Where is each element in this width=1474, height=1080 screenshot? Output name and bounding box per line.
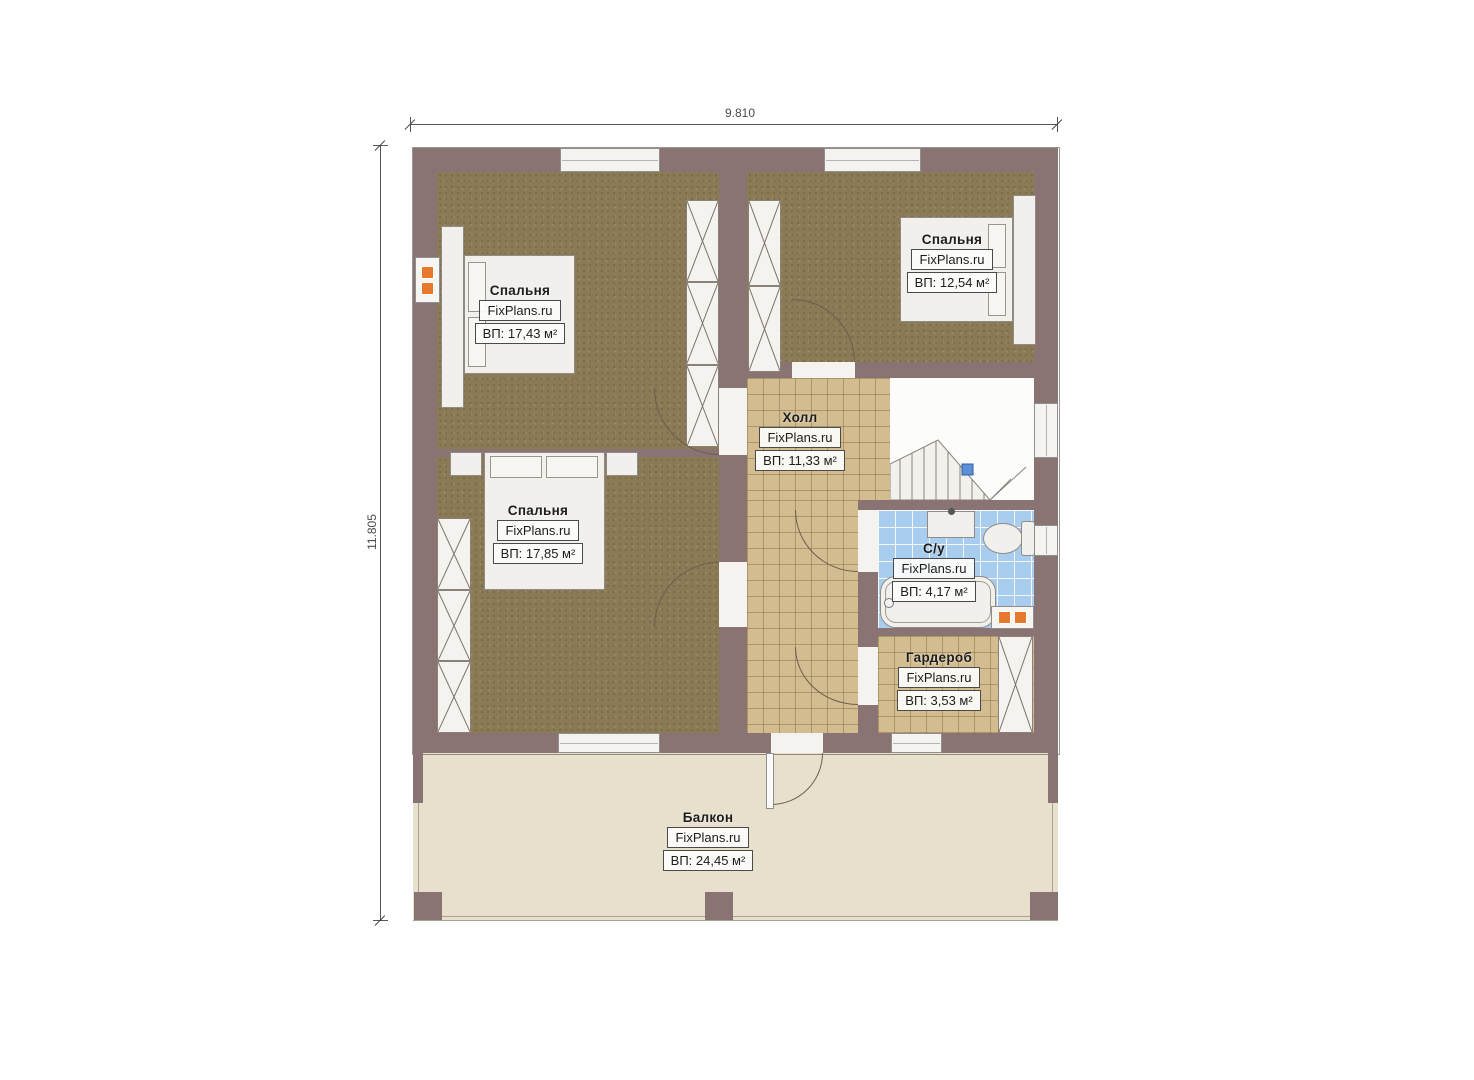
wardrobe-x-cell (748, 286, 781, 372)
wardrobe-x-cell (437, 590, 471, 662)
room-name: С/у (923, 541, 945, 556)
window-bottom-bedroom (558, 733, 660, 753)
room-label-bedroom-tr: Спальня FixPlans.ru ВП: 12,54 м² (888, 232, 1016, 293)
wall-bedroom-tr-bottom (747, 362, 1034, 378)
room-area: ВП: 4,17 м² (892, 581, 975, 602)
wall-bath-wardrobe-divider (858, 628, 1034, 636)
room-name: Спальня (490, 283, 550, 298)
floor-plan-canvas: Спальня FixPlans.ru ВП: 17,43 м² Спальня… (0, 0, 1474, 1080)
window-right-stairwell (1034, 403, 1058, 458)
door-gap-bathroom (858, 510, 878, 572)
balcony-column-left (414, 892, 442, 920)
window-top-left (560, 148, 660, 172)
room-label-bathroom: С/у FixPlans.ru ВП: 4,17 м² (880, 541, 988, 602)
dimension-line-left (380, 145, 381, 920)
room-name: Гардероб (906, 650, 972, 665)
vent-shaft-left (415, 257, 440, 303)
watermark: FixPlans.ru (911, 249, 992, 270)
stair-marker (962, 464, 973, 475)
watermark: FixPlans.ru (893, 558, 974, 579)
vent-shaft-bathroom (991, 606, 1034, 629)
nightstand (606, 452, 638, 476)
room-label-bedroom-tl: Спальня FixPlans.ru ВП: 17,43 м² (455, 283, 585, 344)
toilet-tank (1021, 521, 1035, 556)
toilet-bowl (983, 523, 1023, 554)
door-leaf-balcony (766, 753, 774, 809)
room-name: Холл (782, 410, 817, 425)
door-gap-bedroom-bl (719, 562, 747, 627)
balcony-edge-line (413, 920, 1058, 921)
bed-side-cabinet (1013, 195, 1036, 345)
room-area: ВП: 12,54 м² (907, 272, 998, 293)
wardrobe-x-cell (437, 661, 471, 733)
room-label-hall: Холл FixPlans.ru ВП: 11,33 м² (740, 410, 860, 471)
window-right-bathroom (1034, 525, 1058, 556)
wardrobe-x-cell (686, 200, 719, 282)
room-label-bedroom-bl: Спальня FixPlans.ru ВП: 17,85 м² (470, 503, 606, 564)
room-label-wardrobe: Гардероб FixPlans.ru ВП: 3,53 м² (883, 650, 995, 711)
vent-icon (421, 282, 434, 295)
dimension-line-top (410, 124, 1058, 125)
door-gap-bedroom-tr (792, 362, 855, 378)
room-area: ВП: 17,85 м² (493, 543, 584, 564)
nightstand (450, 452, 482, 476)
wardrobe-symbol-wardrobe-room (998, 636, 1033, 733)
wall-top (413, 148, 1058, 172)
balcony-column-right (1030, 892, 1058, 920)
room-area: ВП: 17,43 м² (475, 323, 566, 344)
dimension-height-label: 11.805 (365, 482, 379, 582)
balcony-wall-stub-left (413, 753, 423, 803)
room-label-balcony: Балкон FixPlans.ru ВП: 24,45 м² (643, 810, 773, 871)
balcony-column-middle (705, 892, 733, 920)
room-name: Балкон (683, 810, 734, 825)
wardrobe-symbol-bedroom-bl (437, 518, 471, 733)
wardrobe-x-cell (437, 518, 471, 590)
door-gap-balcony (771, 733, 823, 753)
vent-icon (1014, 611, 1027, 624)
watermark: FixPlans.ru (898, 667, 979, 688)
sink-tap-icon (948, 508, 955, 515)
room-area: ВП: 24,45 м² (663, 850, 754, 871)
room-name: Спальня (922, 232, 982, 247)
door-gap-wardrobe (858, 647, 878, 705)
room-area: ВП: 11,33 м² (755, 450, 845, 471)
watermark: FixPlans.ru (667, 827, 748, 848)
wardrobe-x-cell (998, 636, 1033, 733)
wall-left (413, 148, 437, 753)
wall-bath-top (858, 500, 1034, 510)
watermark: FixPlans.ru (759, 427, 840, 448)
vent-icon (421, 266, 434, 279)
pillow (546, 456, 598, 478)
wardrobe-x-cell (686, 282, 719, 364)
wardrobe-x-cell (748, 200, 781, 286)
watermark: FixPlans.ru (497, 520, 578, 541)
window-bottom-wardrobe (891, 733, 942, 753)
wall-bottom (413, 733, 1058, 753)
window-top-right (824, 148, 921, 172)
vent-icon (998, 611, 1011, 624)
pillow (490, 456, 542, 478)
sink (927, 511, 975, 538)
watermark: FixPlans.ru (479, 300, 560, 321)
room-name: Спальня (508, 503, 568, 518)
dimension-width-label: 9.810 (680, 106, 800, 120)
wardrobe-symbol-bedroom-tr (748, 200, 781, 372)
balcony-wall-stub-right (1048, 753, 1058, 803)
staircase (890, 378, 1034, 500)
room-area: ВП: 3,53 м² (897, 690, 980, 711)
